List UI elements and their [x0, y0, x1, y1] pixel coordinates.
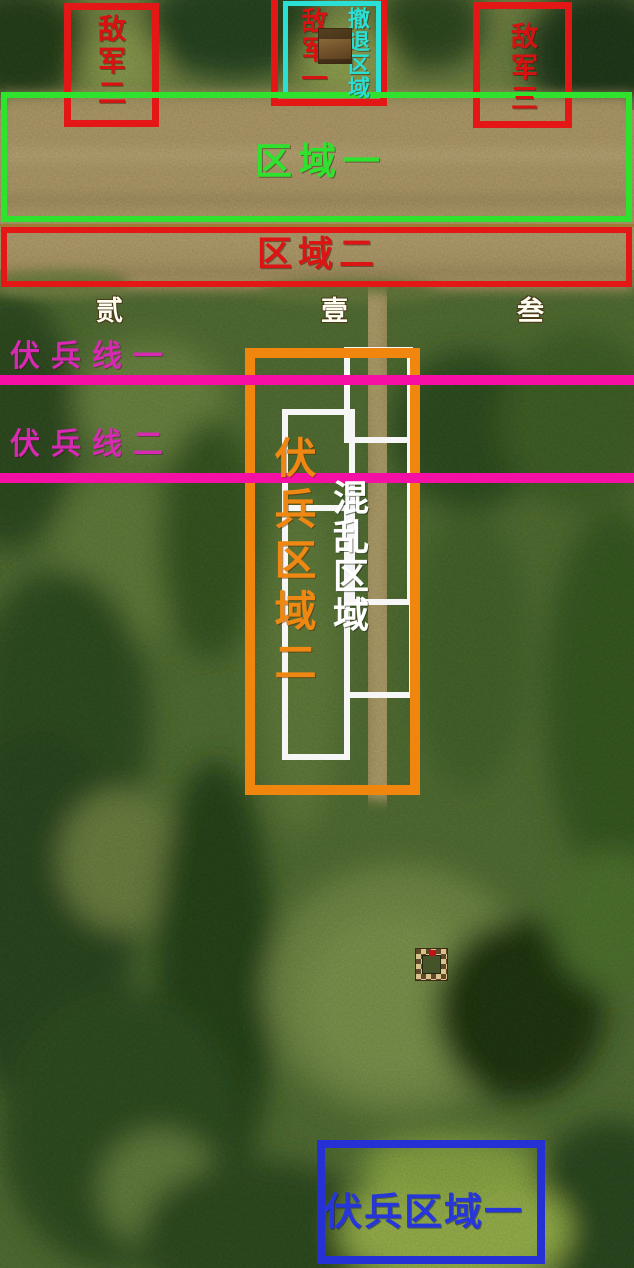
ambush-area-1-label: 伏兵区域一 [324, 1193, 524, 1231]
waypoint-3: 叁 [517, 289, 544, 328]
ambush-area-2-label: 伏兵区域二 [271, 436, 313, 691]
enemy-army-3-label: 敌军三 [508, 22, 535, 115]
enemy-army-2-label: 敌军二 [96, 14, 124, 110]
ambush-line-1 [0, 375, 634, 385]
ambush-line-2 [0, 473, 634, 483]
ambush-line-2-label: 伏兵线二 [10, 419, 174, 463]
tactical-map: 敌军二 敌军一 敌军三 撤退区域 区域一 区域二 贰 壹 叁 伏兵线一 伏兵线二… [0, 0, 634, 1268]
ambush-line-1-label: 伏兵线一 [10, 331, 174, 375]
fort-flag [429, 950, 436, 956]
fort-icon [415, 948, 448, 981]
area-1-label: 区域一 [255, 143, 387, 180]
fort-courtyard [422, 955, 441, 974]
chaos-zone-label: 混乱区域 [329, 479, 365, 635]
hut-icon [318, 28, 352, 64]
waypoint-1: 壹 [321, 289, 348, 328]
waypoint-2: 贰 [96, 289, 123, 328]
area-2-label: 区域二 [257, 238, 380, 273]
